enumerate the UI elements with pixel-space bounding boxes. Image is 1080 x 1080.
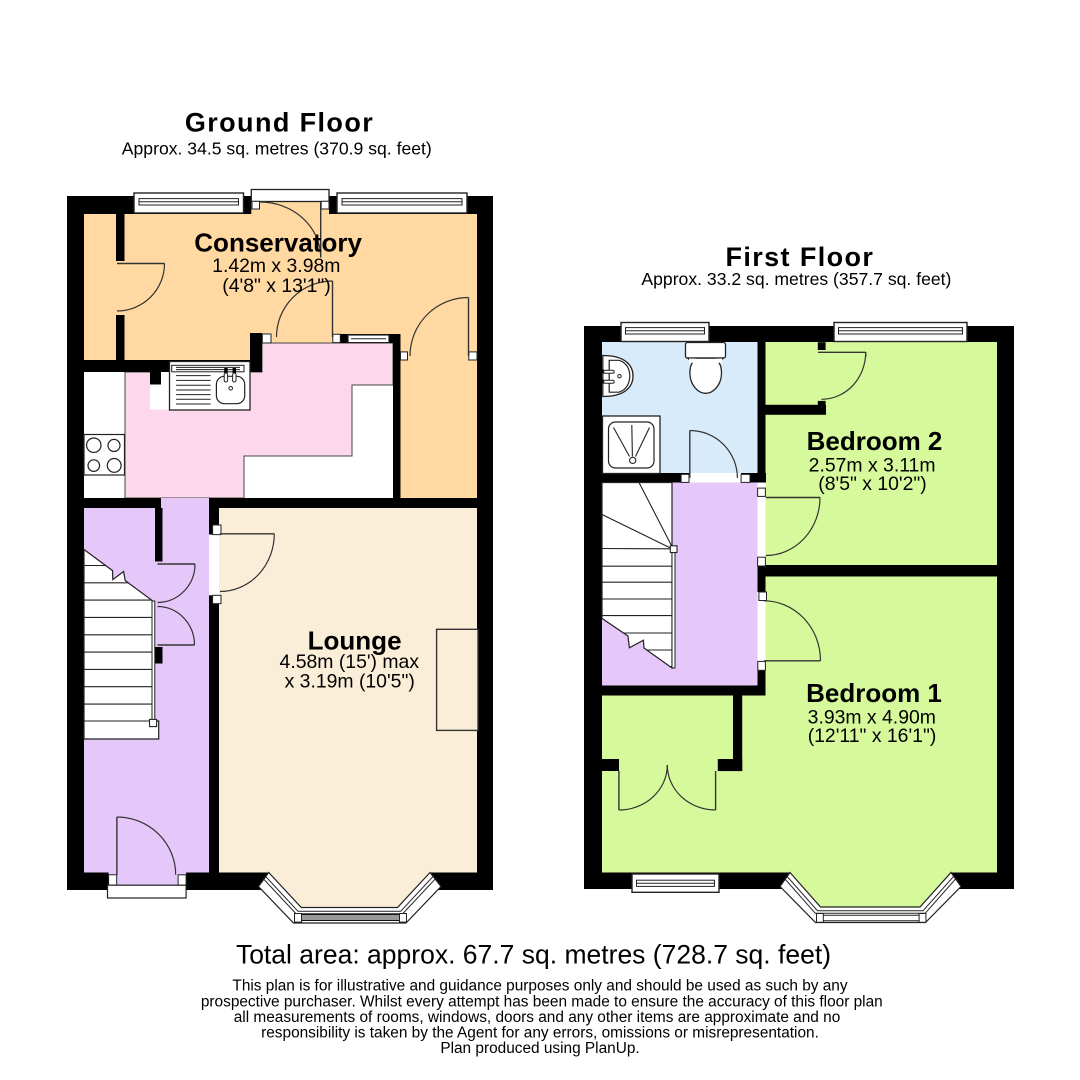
svg-text:Plan produced using PlanUp.: Plan produced using PlanUp. — [440, 1040, 639, 1057]
svg-text:Approx. 34.5 sq. metres (370.9: Approx. 34.5 sq. metres (370.9 sq. feet) — [122, 139, 432, 159]
svg-text:Ground Floor: Ground Floor — [185, 108, 374, 138]
svg-text:(8'5" x 10'2"): (8'5" x 10'2") — [818, 473, 926, 495]
svg-text:all measurements of rooms, win: all measurements of rooms, windows, door… — [234, 1009, 841, 1026]
svg-text:responsibility is taken by the: responsibility is taken by the Agent for… — [261, 1024, 819, 1041]
svg-text:Approx. 33.2 sq. metres (357.7: Approx. 33.2 sq. metres (357.7 sq. feet) — [641, 269, 951, 289]
svg-text:Conservatory: Conservatory — [194, 228, 362, 258]
svg-text:prospective purchaser. Whilst: prospective purchaser. Whilst every atte… — [201, 993, 883, 1010]
svg-text:First Floor: First Floor — [725, 242, 874, 272]
svg-text:(4'8" x 13'1"): (4'8" x 13'1") — [222, 275, 330, 297]
svg-text:Bedroom 2: Bedroom 2 — [807, 426, 943, 456]
svg-text:1.42m x 3.98m: 1.42m x 3.98m — [212, 255, 340, 277]
svg-text:Bedroom 1: Bedroom 1 — [806, 678, 942, 708]
svg-text:Total area: approx. 67.7 sq. m: Total area: approx. 67.7 sq. metres (728… — [236, 940, 831, 970]
svg-text:x 3.19m (10'5"): x 3.19m (10'5") — [285, 670, 415, 692]
svg-text:(12'11" x 16'1"): (12'11" x 16'1") — [808, 725, 937, 747]
svg-text:This plan is for illustrative: This plan is for illustrative and guidan… — [232, 978, 847, 995]
